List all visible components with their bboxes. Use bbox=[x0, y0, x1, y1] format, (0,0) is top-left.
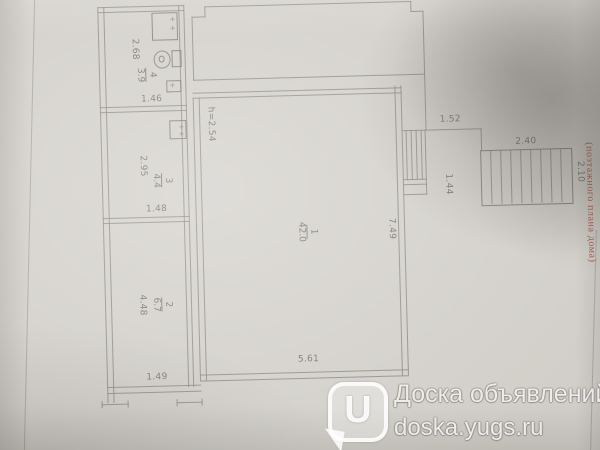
speech-bubble-u-icon: U bbox=[328, 382, 388, 442]
wall-line bbox=[422, 11, 426, 130]
toilet-tank bbox=[171, 50, 181, 67]
wall-line bbox=[204, 6, 205, 17]
room3-area: 4.4 bbox=[150, 173, 161, 188]
room3-number: 3 bbox=[161, 173, 173, 187]
room4-area: 3.9 bbox=[135, 68, 146, 83]
fixture-mark: + bbox=[179, 131, 185, 138]
wall-line bbox=[103, 7, 114, 403]
room4-width-dim: 1.46 bbox=[141, 95, 162, 105]
room1-depth-dim: 7.49 bbox=[386, 218, 396, 239]
room4-number: 4 bbox=[145, 68, 157, 82]
annex-width-dim: 1.52 bbox=[440, 115, 461, 125]
wall-tick bbox=[202, 399, 203, 406]
wall-line bbox=[100, 110, 187, 113]
ladder-rung bbox=[403, 184, 427, 186]
wall-line bbox=[103, 221, 190, 224]
ceiling-height-note: h=2.54 bbox=[205, 107, 215, 142]
watermark-title: Доска объявлений bbox=[394, 380, 600, 409]
wall-line bbox=[97, 5, 184, 8]
room1-number: 1 bbox=[307, 225, 319, 239]
watermark-text: Доска объявлений doska.yugs.ru bbox=[394, 380, 600, 442]
ladder-line bbox=[416, 130, 418, 180]
speech-bubble-tail bbox=[321, 428, 344, 450]
wall-line bbox=[103, 216, 190, 219]
wall-tick bbox=[177, 399, 178, 406]
room1-width-dim: 5.61 bbox=[298, 355, 319, 365]
room3-label: 34.4 bbox=[150, 173, 173, 188]
room3-depth-dim: 2.95 bbox=[138, 155, 148, 176]
room2-depth-dim: 4.48 bbox=[137, 294, 147, 315]
ladder-line bbox=[421, 130, 423, 180]
room2-width-dim: 1.49 bbox=[146, 373, 167, 383]
logo-letter: U bbox=[344, 389, 371, 432]
wall-line bbox=[102, 404, 129, 406]
watermark-url: doska.yugs.ru bbox=[394, 414, 600, 442]
room4-depth-dim: 2.68 bbox=[130, 39, 140, 60]
wall-tick bbox=[102, 401, 103, 408]
fixture-mark: + bbox=[170, 25, 176, 32]
wall-line bbox=[177, 402, 203, 404]
room4-label: 43.9 bbox=[135, 68, 158, 83]
room2-number: 2 bbox=[161, 297, 173, 311]
wall-line bbox=[193, 92, 402, 98]
room2-label: 26.7 bbox=[151, 297, 174, 312]
wall-line bbox=[100, 105, 187, 108]
wall-line bbox=[192, 16, 206, 17]
wall-line bbox=[403, 194, 427, 196]
wall-tick bbox=[128, 401, 129, 408]
wall-line bbox=[97, 7, 108, 403]
watermark: U Доска объявлений doska.yugs.ru bbox=[322, 374, 600, 450]
wall-line bbox=[425, 130, 428, 195]
stairs-width-dim: 2.40 bbox=[515, 137, 536, 147]
room1-area: 42.0 bbox=[296, 222, 307, 242]
floor-plan-photo: + + + + + 2.68 43.9 1.46 2.95 34.4 1.48 … bbox=[0, 0, 600, 450]
wall-line bbox=[481, 128, 483, 151]
room2-area: 6.7 bbox=[151, 297, 162, 312]
room1-label: 142.0 bbox=[296, 221, 319, 242]
wall-line bbox=[107, 385, 201, 388]
annex-depth-dim: 1.44 bbox=[443, 173, 453, 194]
ladder-line bbox=[406, 130, 408, 180]
wall-line bbox=[402, 128, 482, 131]
wall-line bbox=[204, 1, 411, 7]
wall-line bbox=[192, 17, 195, 81]
fixture-mark: + bbox=[169, 16, 175, 23]
ladder-rung bbox=[403, 179, 427, 181]
wall-line bbox=[107, 391, 201, 394]
room3-width-dim: 1.48 bbox=[146, 205, 167, 215]
wall-line bbox=[193, 74, 425, 81]
ladder-line bbox=[411, 130, 413, 180]
fixture-mark: + bbox=[169, 82, 175, 89]
